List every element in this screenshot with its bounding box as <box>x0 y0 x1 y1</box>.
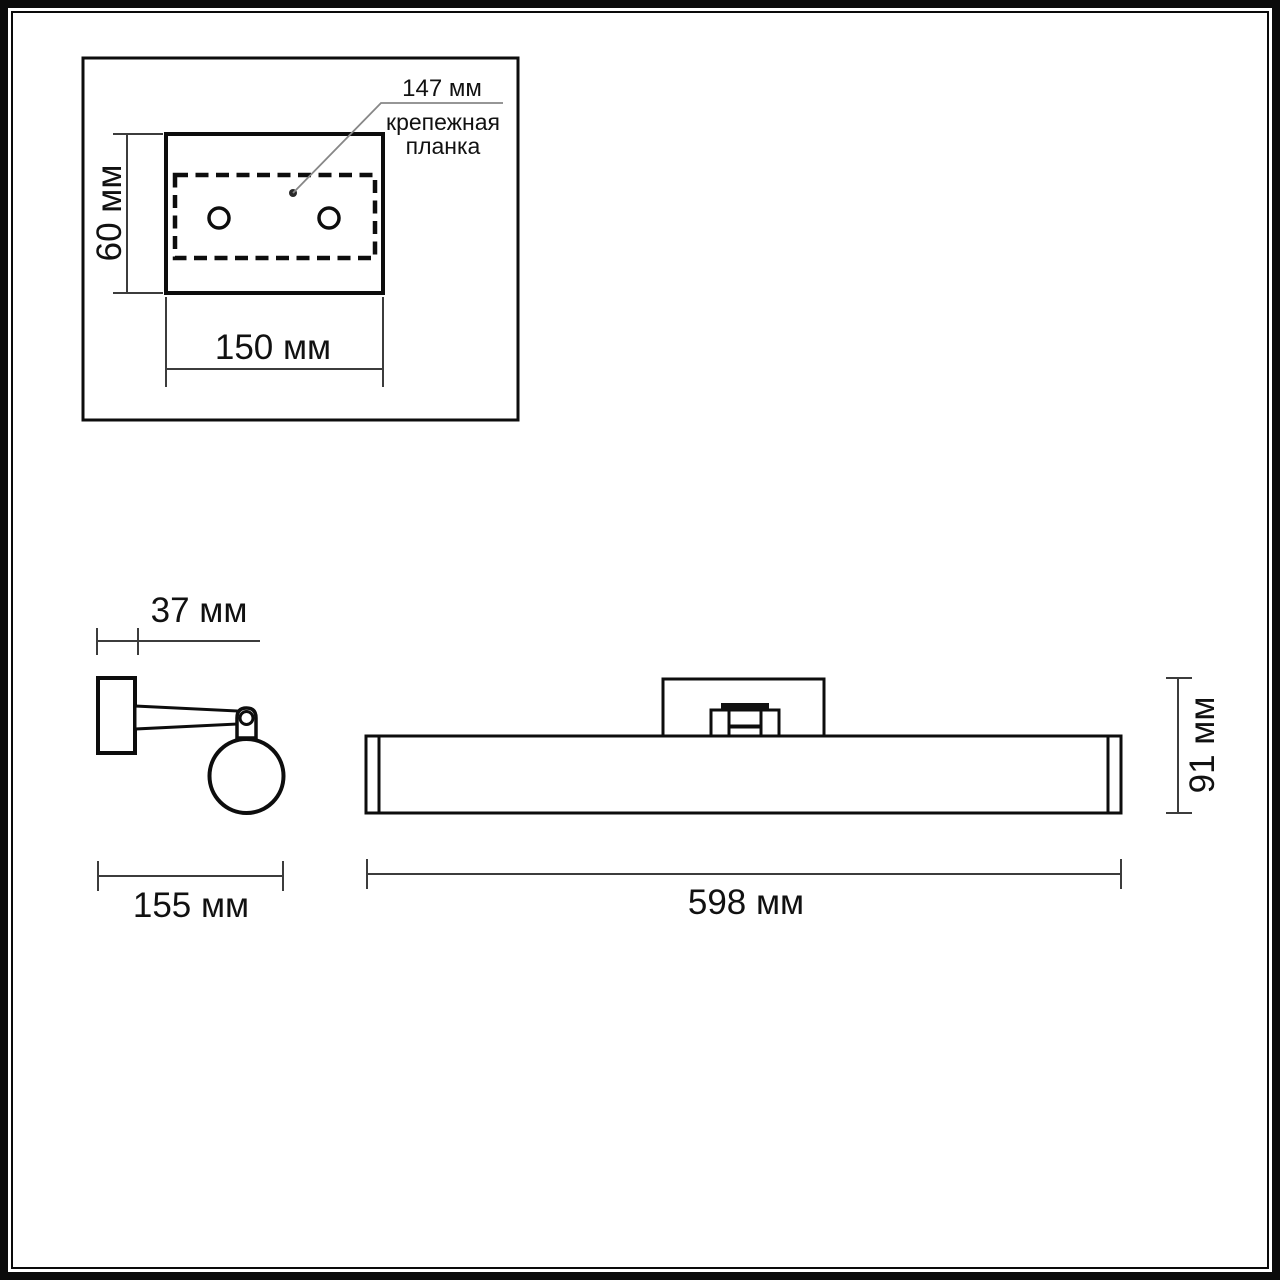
screw-hole-left <box>209 208 229 228</box>
front-view <box>366 678 1192 889</box>
side-view <box>96 628 284 891</box>
mounting-plate-outline <box>166 134 383 293</box>
swivel-bracket-outline <box>711 710 779 737</box>
lamp-bar-outline <box>366 736 1121 813</box>
dimension-37mm <box>96 628 260 655</box>
swivel-top-plate <box>721 703 769 710</box>
mounting-bar-spacing-label: 147 мм <box>402 75 482 103</box>
wall-plate-outline <box>98 678 135 753</box>
pivot-pin <box>240 712 253 725</box>
wall-plate-depth-label: 37 мм <box>151 591 248 631</box>
side-total-depth-label: 155 мм <box>133 886 249 926</box>
mounting-bar-caption-line2: планка <box>386 134 500 158</box>
screw-hole-right <box>319 208 339 228</box>
bar-height-label: 91 мм <box>1183 697 1223 794</box>
mounting-bar-dashed-outline <box>175 175 375 258</box>
mounting-bar-caption-line1: крепежная <box>386 110 500 134</box>
lamp-head <box>210 739 284 813</box>
drawing-canvas <box>0 0 1280 1280</box>
plate-width-label: 150 мм <box>215 328 331 368</box>
mounting-bar-caption: крепежная планка <box>386 110 500 158</box>
plate-height-label: 60 мм <box>90 165 130 262</box>
bar-length-label: 598 мм <box>688 883 804 923</box>
lamp-arm <box>135 706 238 729</box>
technical-drawing-page: 147 мм крепежная планка 60 мм 150 мм 37 … <box>0 0 1280 1280</box>
